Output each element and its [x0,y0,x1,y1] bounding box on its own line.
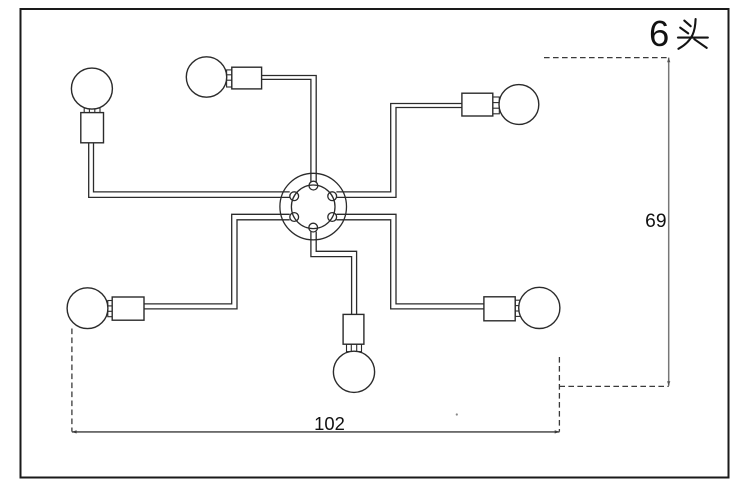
svg-text:69: 69 [645,211,666,232]
svg-text:102: 102 [314,413,345,434]
svg-text:6: 6 [649,13,669,54]
